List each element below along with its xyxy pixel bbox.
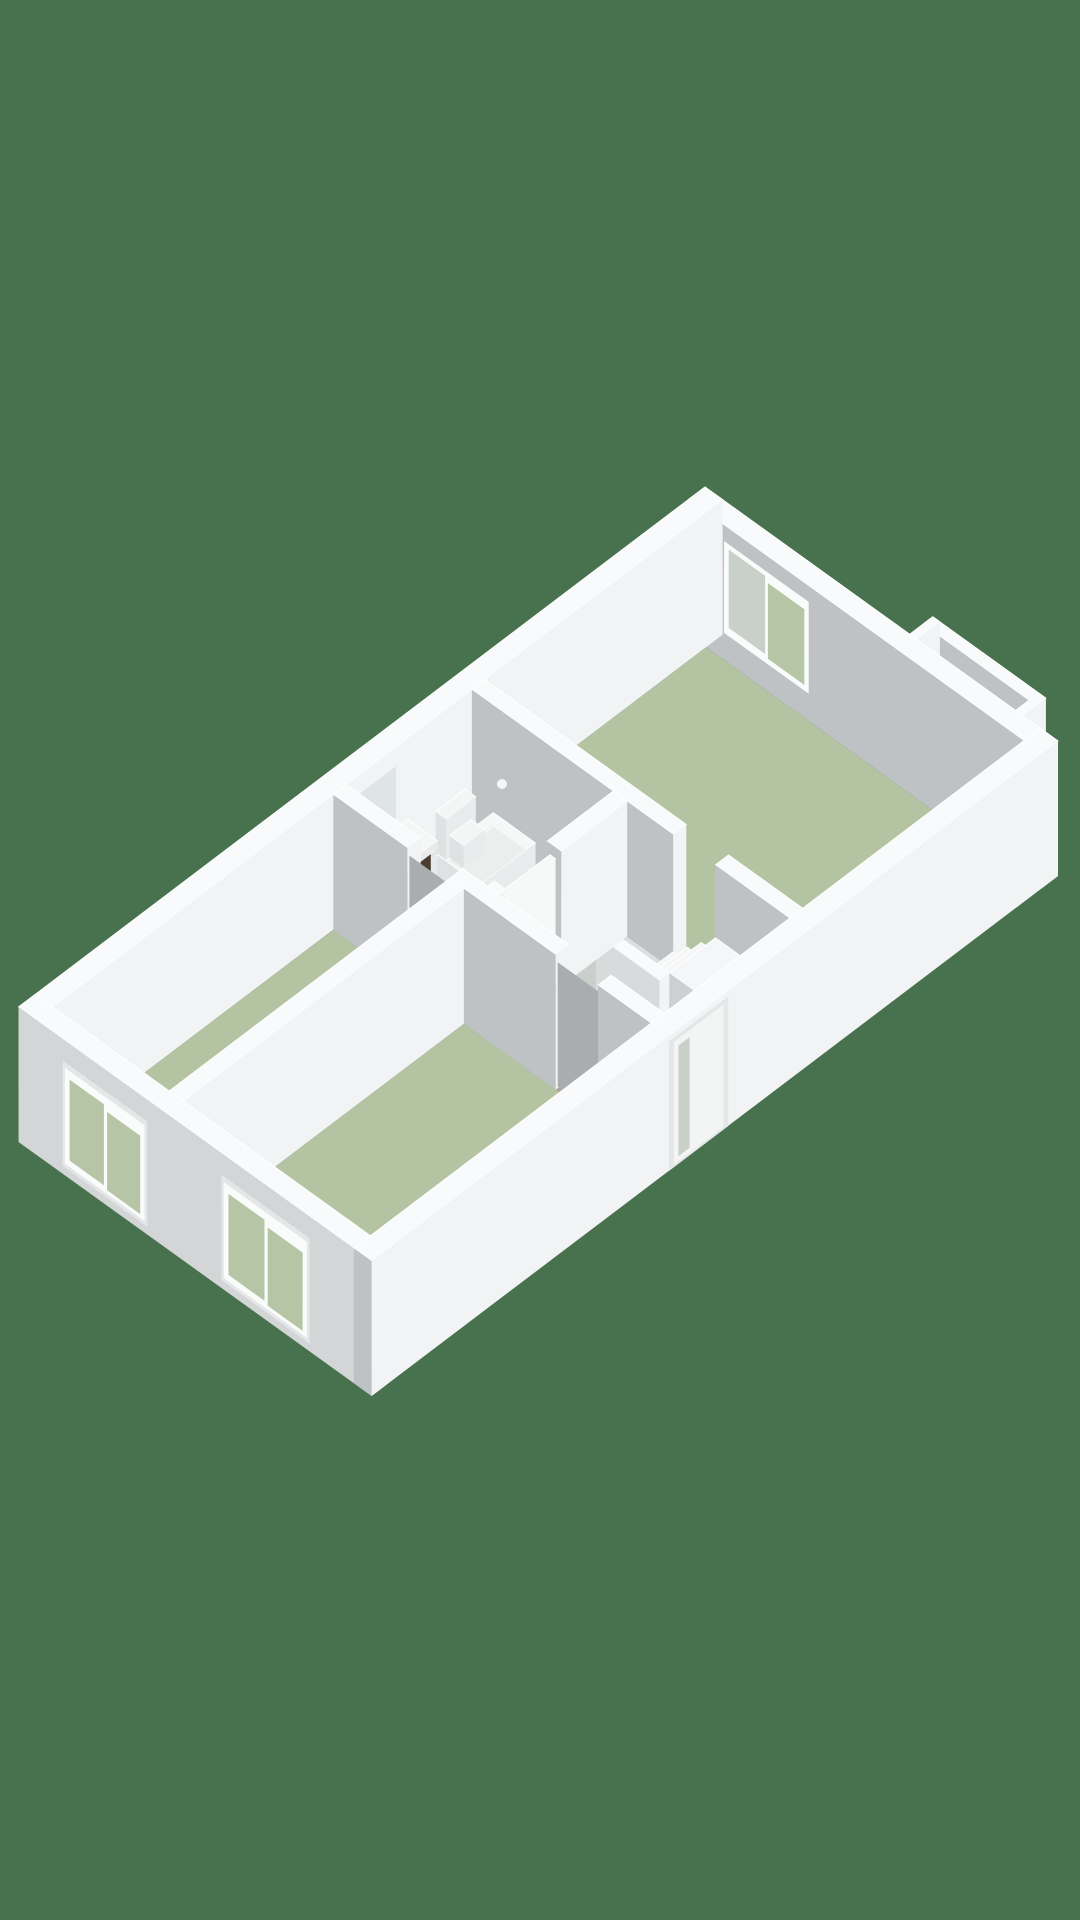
exterior-wall-se-face-sw (354, 1248, 372, 1396)
apartment-3d-floor-plan (0, 0, 1080, 1920)
floorplan-stage (0, 0, 1080, 1920)
shower-mixer (497, 779, 507, 789)
toilet-tank-face-sw (436, 812, 447, 860)
entry-door-glass (678, 1037, 689, 1156)
wall-living-hall-left-face-se (673, 825, 686, 970)
